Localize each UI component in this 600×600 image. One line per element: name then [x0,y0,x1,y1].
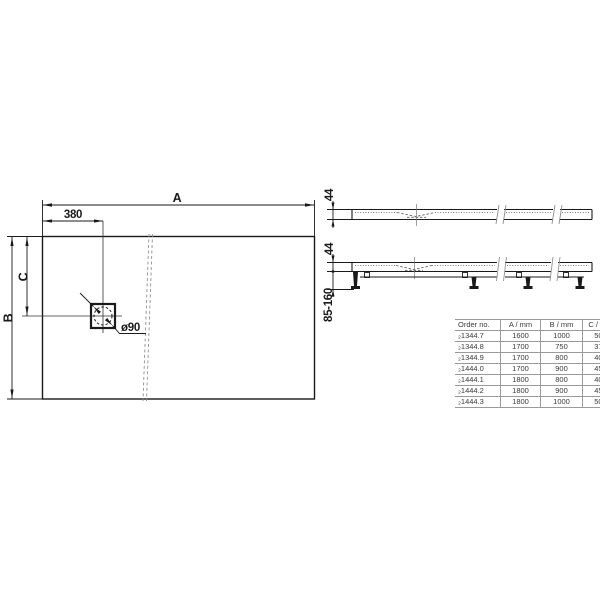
spec-table-header-row: Order no. A / mm B / mm C / mm [455,320,600,331]
cell-order: ₂1344.7 [455,331,501,342]
col-header-b: B / mm [541,320,583,331]
tray-surface-lines-2 [355,266,589,271]
table-row: ₂1344.9 1700 800 400 [455,353,600,364]
dim-380-label: 380 [64,209,82,221]
cell-a: 1600 [501,331,541,342]
cell-order: ₂1344.9 [455,353,501,364]
dim-44-top [327,201,352,228]
spec-table: Order no. A / mm B / mm C / mm ₂1344.7 1… [455,319,598,408]
table-row: ₂1344.8 1700 750 375 [455,342,600,353]
col-header-order: Order no. [455,320,501,331]
cell-b: 800 [541,353,583,364]
col-header-a: A / mm [501,320,541,331]
side-view-frame: 44 85-160 [323,242,592,322]
cell-b: 1000 [541,331,583,342]
cell-c: 500 [583,397,600,408]
cell-c: 450 [583,364,600,375]
cell-a: 1800 [501,375,541,386]
cell-c: 400 [583,375,600,386]
cell-b: 900 [541,364,583,375]
cell-a: 1800 [501,386,541,397]
dim-85-160-label: 85-160 [323,288,335,322]
drain-arrow-nw [94,307,102,315]
cell-order: ₂1344.8 [455,342,501,353]
side-view-tray: 44 [324,188,592,228]
plan-break-lines [143,234,153,401]
cell-a: 1700 [501,342,541,353]
cell-order: ₂1444.0 [455,364,501,375]
table-row: ₂1444.3 1800 1000 500 [455,397,600,408]
cell-order: ₂1444.2 [455,386,501,397]
table-row: ₂1444.2 1800 900 450 [455,386,600,397]
tray-outline [43,237,315,400]
drawing-svg: A 380 B C ø90 [0,0,600,600]
cell-a: 1800 [501,397,541,408]
dim-a-label: A [173,191,182,205]
dim-a [43,200,315,236]
drain-diameter-label: ø90 [121,322,140,334]
col-header-c: C / mm [583,320,600,331]
cell-a: 1700 [501,353,541,364]
table-row: ₂1444.1 1800 800 400 [455,375,600,386]
cell-b: 800 [541,375,583,386]
cell-c: 450 [583,386,600,397]
cell-order: ₂1444.3 [455,397,501,408]
cell-b: 900 [541,386,583,397]
dim-44-front-label: 44 [324,242,336,255]
plan-view: A 380 B C ø90 [2,191,315,401]
dim-b-label: B [2,313,16,322]
drain-centerlines [22,221,122,333]
dim-44-top-label: 44 [324,188,336,201]
cell-c: 500 [583,331,600,342]
cell-a: 1700 [501,364,541,375]
table-row: ₂1444.0 1700 900 450 [455,364,600,375]
cell-c: 400 [583,353,600,364]
break-marks-top [496,205,562,224]
cell-b: 1000 [541,397,583,408]
dim-c-label: C [17,272,31,281]
cell-c: 375 [583,342,600,353]
cell-order: ₂1444.1 [455,375,501,386]
table-row: ₂1344.7 1600 1000 500 [455,331,600,342]
technical-drawing-page: A 380 B C ø90 [0,0,600,600]
cell-b: 750 [541,342,583,353]
